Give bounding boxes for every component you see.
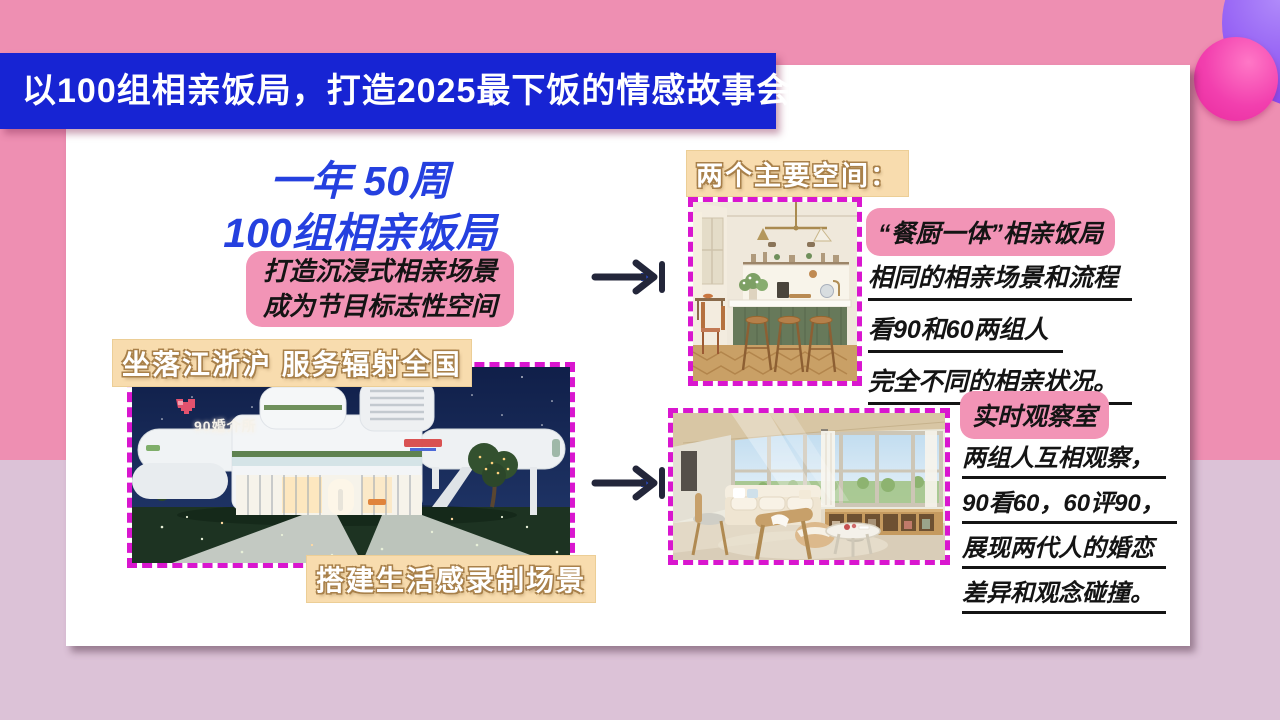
building-photo [132, 367, 570, 563]
arrow-right-icon [591, 259, 669, 295]
pink-note-line1: 打造沉浸式相亲场景 [246, 254, 514, 289]
slide-title: 以100组相亲饭局，打造2025最下饭的情感故事会 [0, 53, 776, 129]
living-room-photo [673, 413, 945, 560]
decor-circle-pink [1194, 37, 1278, 121]
pink-note-box: 打造沉浸式相亲场景 成为节目标志性空间 [246, 251, 514, 327]
space1-title: “餐厨一体”相亲饭局 [866, 208, 1115, 256]
arrow-right-icon [591, 465, 669, 501]
building-sign-text: 90婚介所 [194, 416, 257, 436]
slide: 以100组相亲饭局，打造2025最下饭的情感故事会 一年 50周 100组相亲饭… [0, 0, 1280, 720]
space2-line: 展现两代人的婚恋 [962, 528, 1166, 569]
kitchen-photo-frame [688, 197, 862, 386]
building-photo-frame: 90婚介所 [127, 362, 575, 568]
section-label: 两个主要空间： [686, 150, 909, 197]
location-label: 坐落江浙沪 服务辐射全国 [112, 339, 472, 387]
living-room-photo-frame [668, 408, 950, 565]
space2-line: 差异和观念碰撞。 [962, 573, 1166, 614]
space2-title: 实时观察室 [960, 391, 1109, 439]
space1-line: 看90和60两组人 [868, 310, 1063, 353]
space2-text: 两组人互相观察， 90看60，60评90， 展现两代人的婚恋 差异和观念碰撞。 [962, 438, 1177, 618]
headline-line2: 100组相亲饭局 [180, 199, 540, 259]
space1-line: 相同的相亲场景和流程 [868, 258, 1132, 301]
pink-note-line2: 成为节目标志性空间 [246, 289, 514, 324]
space2-line: 90看60，60评90， [962, 483, 1177, 524]
space2-line: 两组人互相观察， [962, 438, 1166, 479]
kitchen-photo [693, 202, 857, 381]
headline-line1: 一年 50周 [180, 147, 540, 207]
title-banner: 以100组相亲饭局，打造2025最下饭的情感故事会 [0, 53, 776, 129]
build-label: 搭建生活感录制场景 [306, 555, 596, 603]
